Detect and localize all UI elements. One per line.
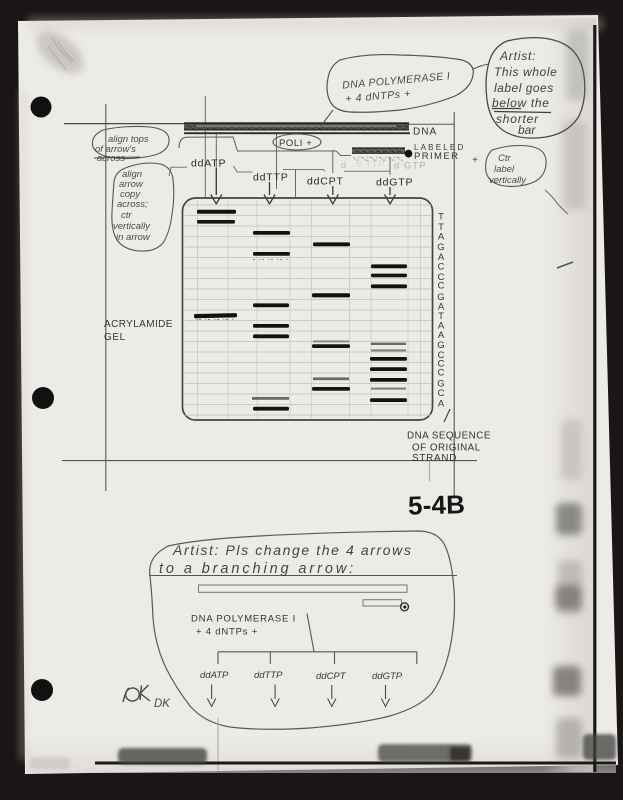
svg-text:This whole: This whole [494,65,557,79]
svg-text:across: across [97,153,125,164]
svg-text:label: label [494,164,515,175]
svg-text:+: + [472,155,478,166]
svg-text:5-4B: 5-4B [408,489,466,520]
svg-text:d: d [341,160,346,170]
svg-text:T: T [438,212,444,223]
svg-text:ddCPT: ddCPT [316,671,347,682]
svg-text:Ctr: Ctr [498,153,512,164]
svg-text:ddTTP: ddTTP [254,670,283,681]
svg-text:vertically: vertically [489,175,527,186]
svg-text:ACRYLAMIDE: ACRYLAMIDE [104,319,173,330]
svg-text:C: C [438,388,445,399]
svg-text:ddATP: ddATP [191,158,226,170]
svg-text:C: C [438,262,445,273]
svg-text:to a branching arrow:: to a branching arrow: [159,561,356,577]
svg-text:in arrow: in arrow [116,232,151,243]
svg-text:ctr: ctr [121,210,132,221]
svg-text:ddTTP: ddTTP [253,172,289,184]
svg-text:across;: across; [117,199,148,210]
svg-text:Artist: Pls change the 4 arrow: Artist: Pls change the 4 arrows [172,542,412,558]
svg-text:DNA: DNA [413,127,437,138]
svg-text:ddGTP: ddGTP [376,177,413,189]
svg-text:d TTP: d TTP [356,159,385,169]
svg-text:d GTP: d GTP [394,161,426,172]
svg-text:A: A [438,399,445,410]
svg-text:DNA SEQUENCE: DNA SEQUENCE [407,431,491,442]
svg-text:bar: bar [518,123,536,137]
svg-text:A: A [438,232,445,243]
svg-text:DNA POLYMERASE I: DNA POLYMERASE I [191,614,296,625]
svg-text:STRAND: STRAND [412,453,457,464]
svg-text:C: C [438,281,445,292]
svg-text:GEL: GEL [104,332,126,343]
svg-text:DK: DK [154,698,171,710]
svg-text:label goes: label goes [494,81,554,95]
svg-text:+ 4 dNTPs +: + 4 dNTPs + [196,627,258,638]
svg-text:C: C [438,368,445,379]
svg-text:POLI +: POLI + [279,138,312,149]
svg-text:ddGTP: ddGTP [372,671,403,682]
svg-text:vertically: vertically [113,221,151,232]
svg-text:ddATP: ddATP [200,670,229,681]
svg-text:ddCPT: ddCPT [307,176,344,188]
svg-text:Artist:: Artist: [499,49,536,63]
